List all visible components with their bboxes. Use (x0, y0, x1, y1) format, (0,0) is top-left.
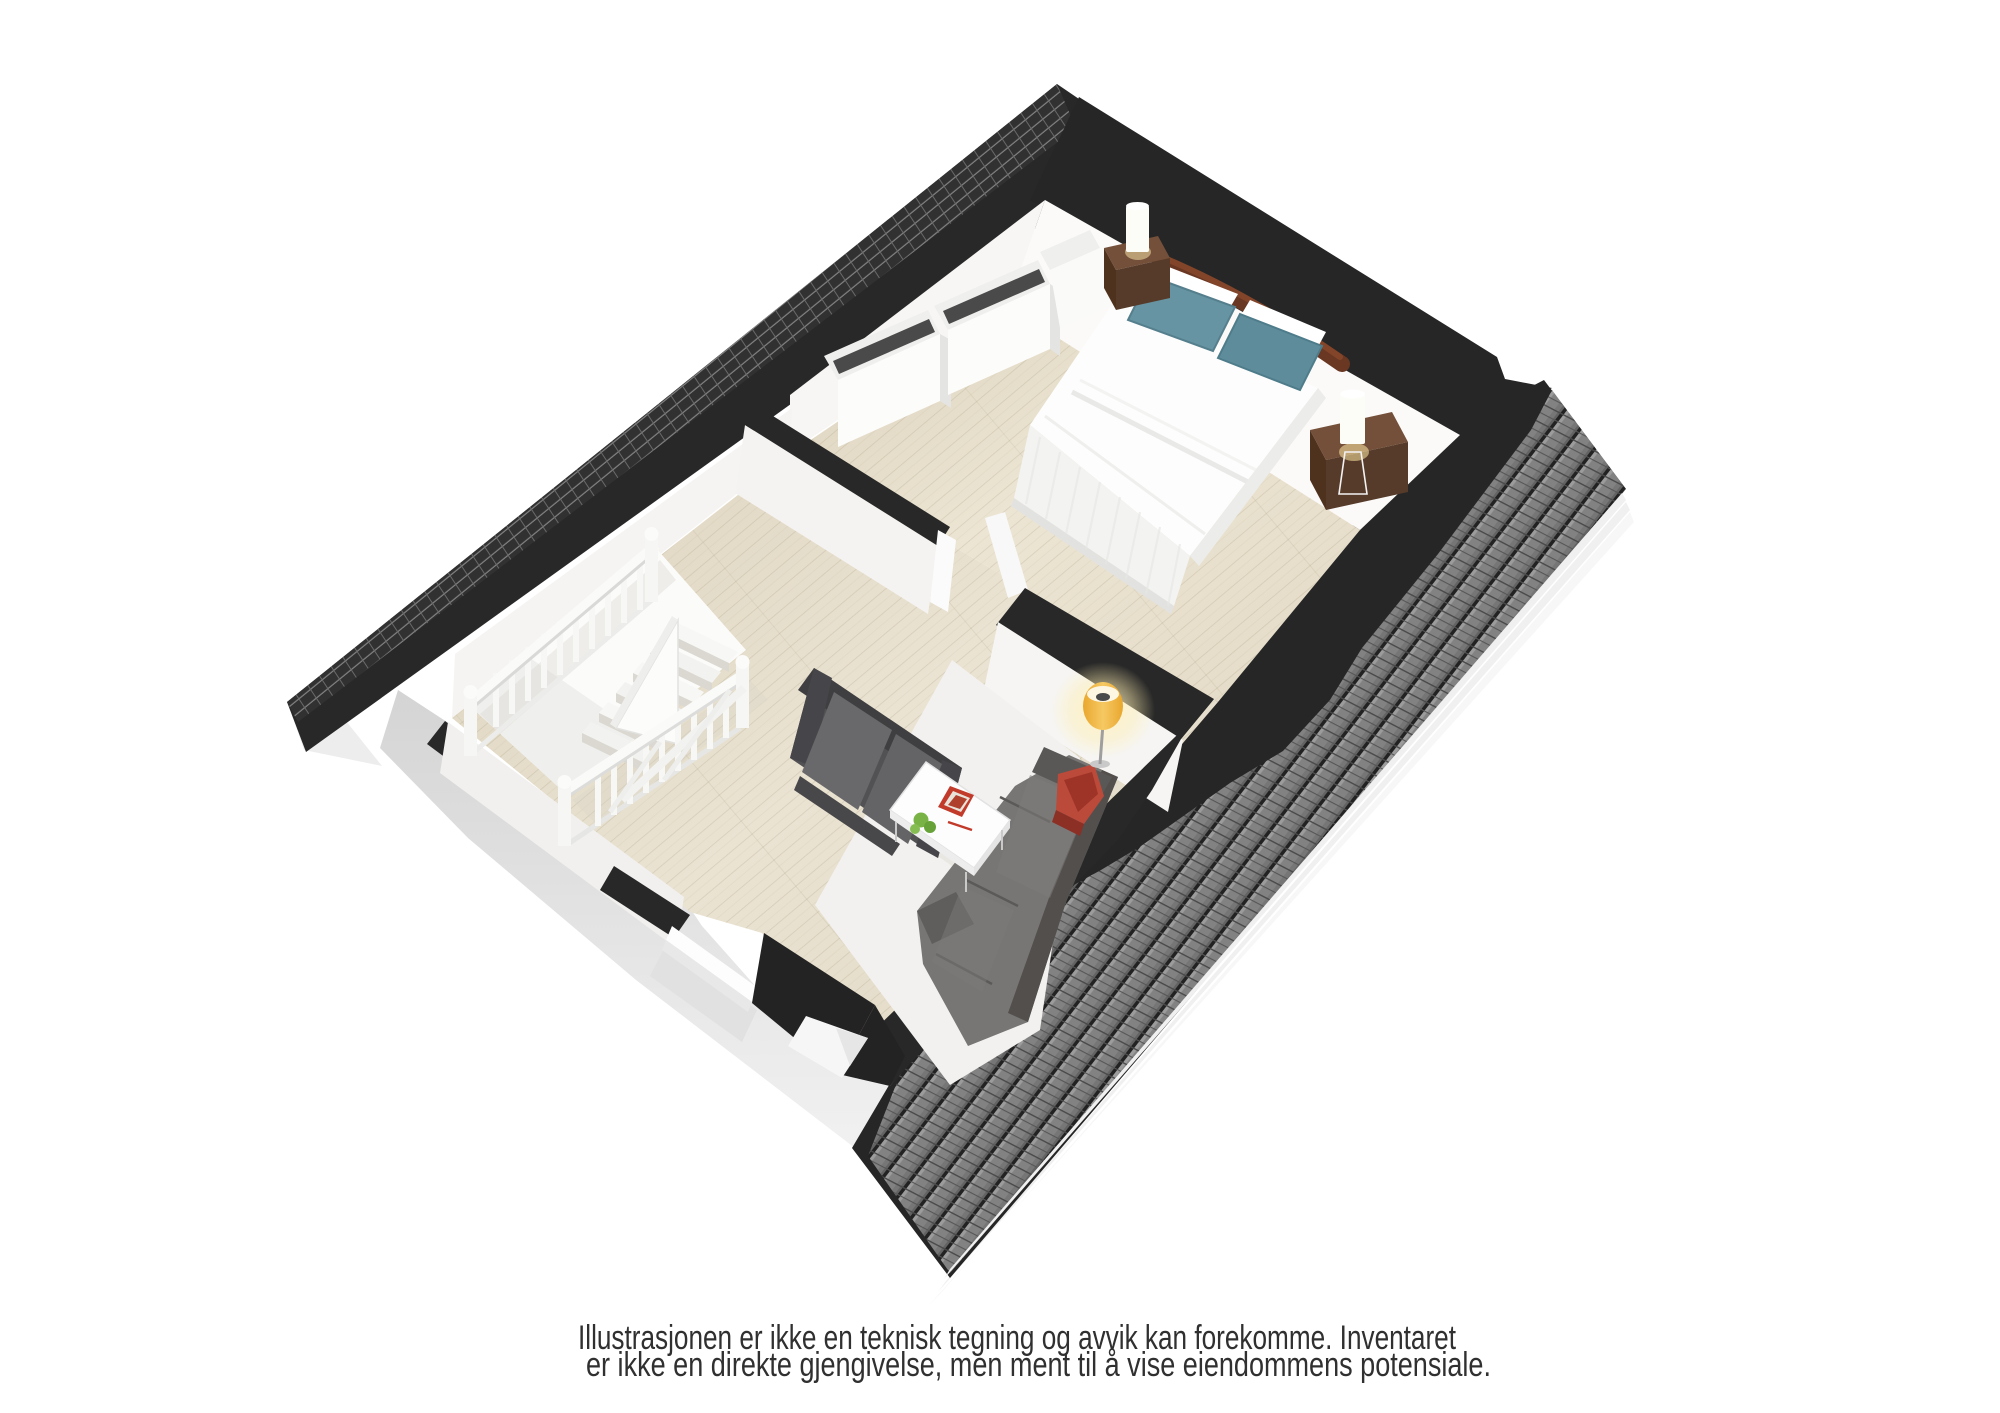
svg-text:er ikke en direkte gjengivelse: er ikke en direkte gjengivelse, men ment… (586, 1346, 1491, 1384)
